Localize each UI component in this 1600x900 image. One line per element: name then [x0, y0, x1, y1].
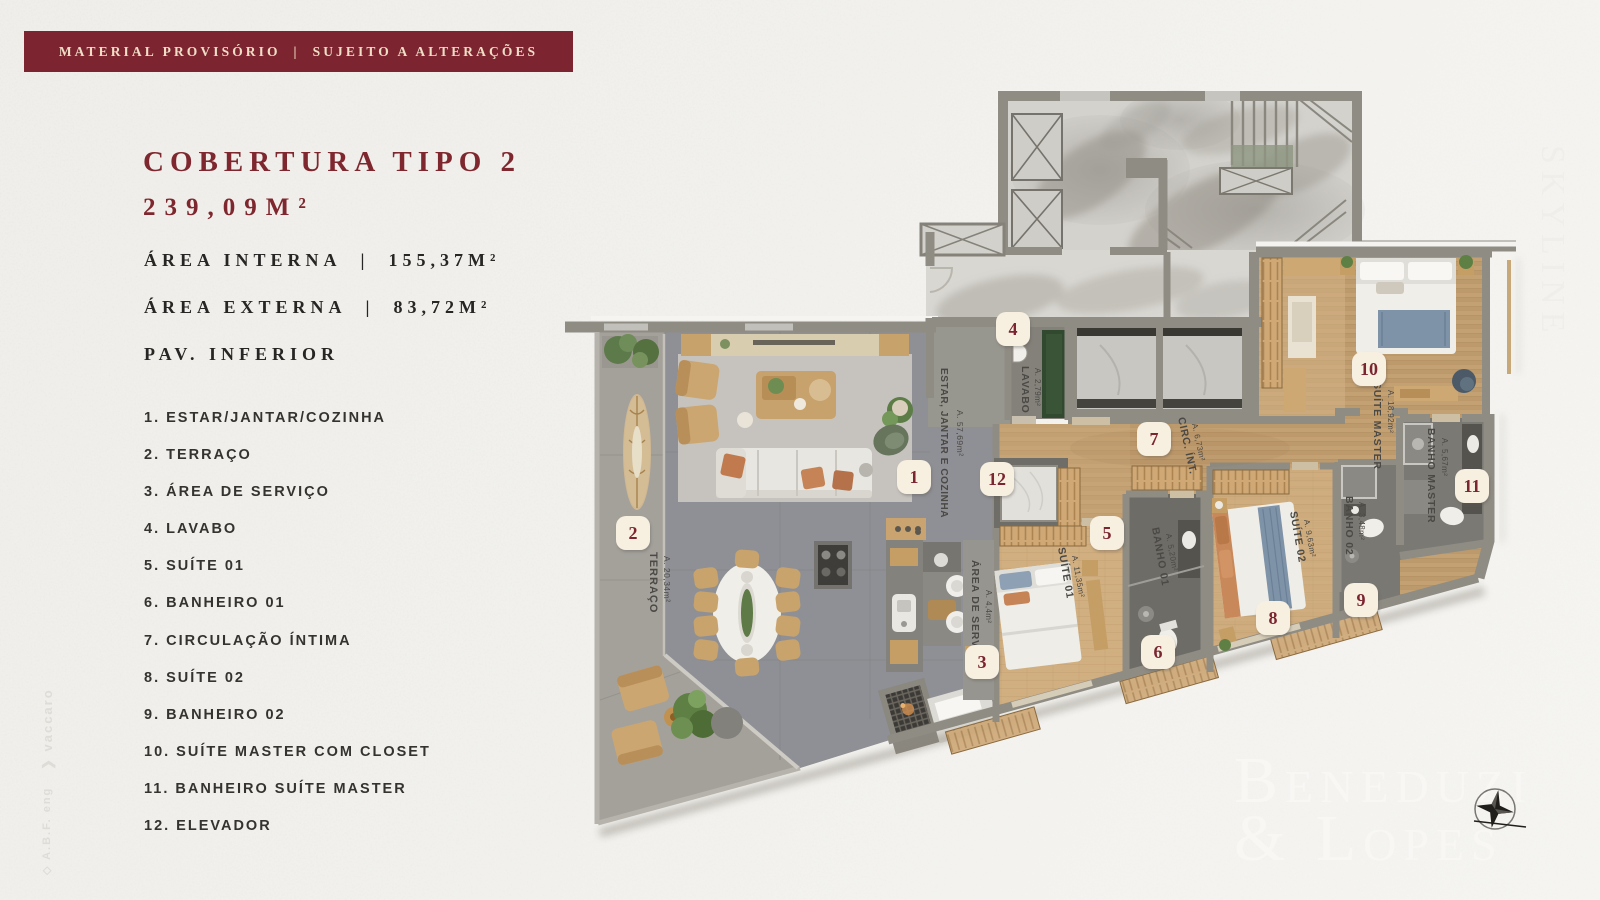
svg-text:2: 2 — [629, 523, 638, 543]
svg-text:1: 1 — [910, 467, 919, 487]
svg-text:12: 12 — [988, 469, 1006, 489]
svg-text:7: 7 — [1150, 429, 1159, 449]
svg-text:11: 11 — [1463, 476, 1480, 496]
svg-text:9: 9 — [1357, 590, 1366, 610]
svg-text:10: 10 — [1360, 359, 1378, 379]
svg-text:TERRAÇO: TERRAÇO — [647, 552, 659, 613]
svg-text:ESTAR, JANTAR E COZINHA: ESTAR, JANTAR E COZINHA — [938, 368, 949, 518]
svg-text:A. 2,79m²: A. 2,79m² — [1033, 368, 1042, 406]
svg-text:5: 5 — [1103, 523, 1112, 543]
svg-text:A. 18,92m²: A. 18,92m² — [1386, 390, 1395, 433]
svg-text:SUÍTE MASTER: SUÍTE MASTER — [1371, 382, 1384, 470]
svg-text:LAVABO: LAVABO — [1019, 366, 1031, 414]
svg-text:6: 6 — [1154, 642, 1163, 662]
svg-text:& Lopes: & Lopes — [1234, 802, 1504, 875]
svg-text:SKYLINE: SKYLINE — [1534, 145, 1571, 339]
svg-text:8: 8 — [1269, 608, 1278, 628]
svg-text:BANHO 02: BANHO 02 — [1343, 496, 1355, 556]
svg-text:3: 3 — [978, 652, 987, 672]
svg-text:A. 4,4m²: A. 4,4m² — [984, 590, 993, 623]
svg-text:A. 57,69m²: A. 57,69m² — [955, 410, 965, 457]
svg-text:BANHO MASTER: BANHO MASTER — [1425, 428, 1437, 523]
svg-text:A. 5,67m²: A. 5,67m² — [1440, 438, 1449, 476]
svg-text:4: 4 — [1009, 319, 1018, 339]
svg-text:A. 3,48m²: A. 3,48m² — [1357, 502, 1366, 540]
svg-text:A. 20,34m²: A. 20,34m² — [662, 556, 672, 603]
